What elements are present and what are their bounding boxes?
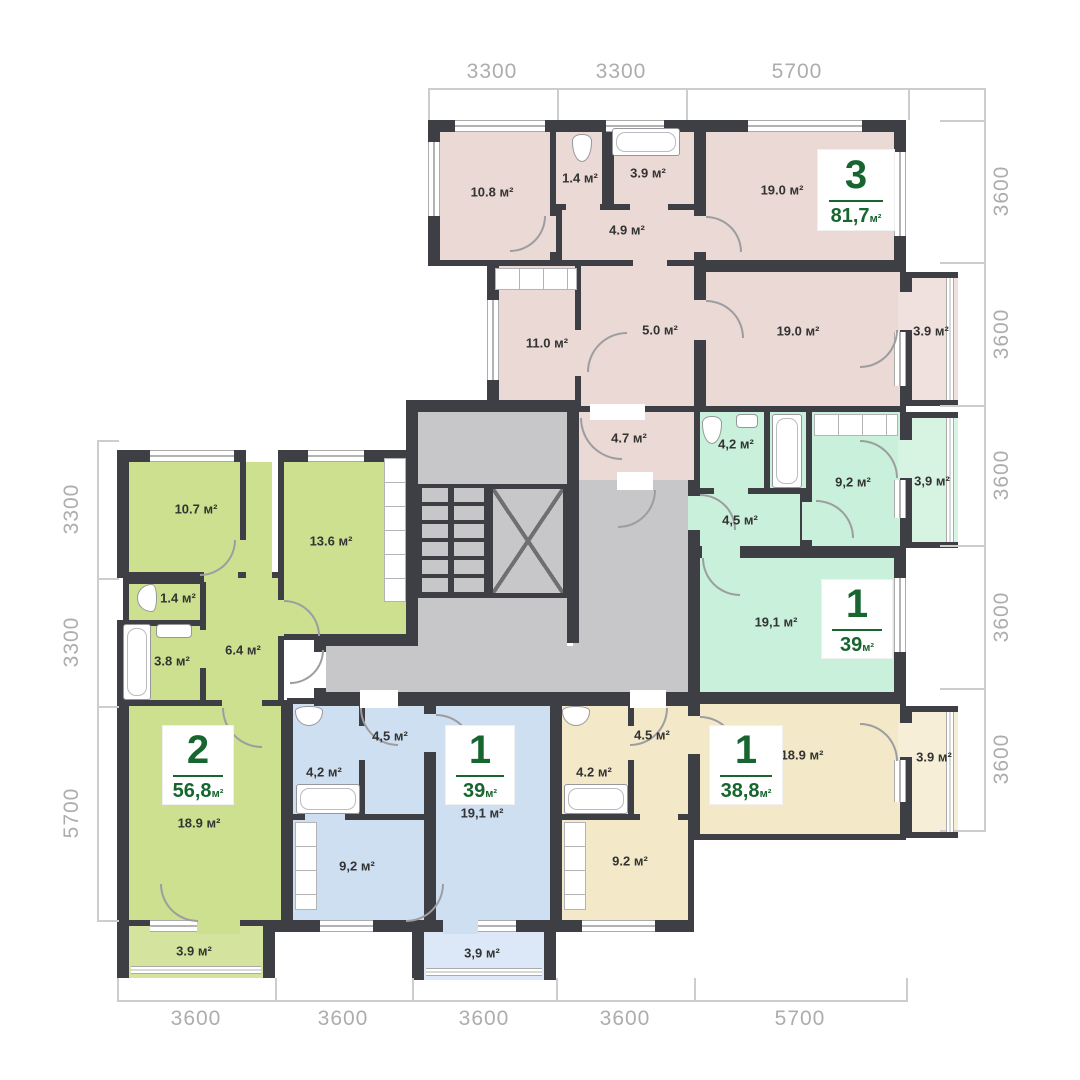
sink-icon xyxy=(156,624,192,638)
window xyxy=(894,578,906,652)
dim-line-right xyxy=(984,88,986,832)
badge-divider xyxy=(720,775,772,777)
dim-label: 3600 xyxy=(459,1007,510,1031)
window xyxy=(320,920,373,932)
dim-label: 3600 xyxy=(990,592,1014,643)
apartment-badge-yellow[interactable]: 1 38,8м² xyxy=(710,726,782,804)
room-area-label: 1.4 м² xyxy=(160,591,196,606)
balcony-rail xyxy=(946,712,954,832)
room-area-label: 4,5 м² xyxy=(372,729,408,744)
room-pink-hall2 xyxy=(575,260,700,412)
room-area-label: 4,2 м² xyxy=(718,437,754,452)
door-gap xyxy=(694,216,706,252)
door-gap xyxy=(443,920,478,934)
window xyxy=(308,450,364,462)
dim-line-bottom xyxy=(117,1000,908,1002)
room-area-label: 13.6 м² xyxy=(310,534,353,549)
apartment-rooms-count: 1 xyxy=(735,730,757,770)
door-gap xyxy=(688,496,700,530)
dim-tick xyxy=(428,88,430,120)
kitchen-counter xyxy=(295,822,317,910)
door-gap xyxy=(714,486,748,500)
dim-tick xyxy=(686,88,688,120)
room-area-label: 4.2 м² xyxy=(576,765,612,780)
bathtub-icon xyxy=(612,128,680,156)
room-area-label: 19.0 м² xyxy=(777,324,820,339)
door-gap xyxy=(196,630,208,668)
dim-label: 3600 xyxy=(990,166,1014,217)
dim-tick xyxy=(940,688,986,690)
room-area-label: 4.5 м² xyxy=(634,728,670,743)
room-area-label: 19,1 м² xyxy=(461,806,504,821)
door-gap xyxy=(630,690,666,708)
dim-label: 3300 xyxy=(596,60,647,84)
dim-label: 3300 xyxy=(467,60,518,84)
badge-divider xyxy=(829,200,884,202)
apartment-rooms-count: 1 xyxy=(846,584,868,624)
badge-divider xyxy=(456,775,505,777)
window xyxy=(748,120,862,132)
room-area-label: 3.8 м² xyxy=(154,654,190,669)
dim-label: 3600 xyxy=(990,309,1014,360)
room-area-label: 3.9 м² xyxy=(916,750,952,765)
door-gap xyxy=(633,258,667,274)
dim-tick xyxy=(908,88,910,120)
room-area-label: 10.7 м² xyxy=(175,502,218,517)
dim-tick xyxy=(940,262,986,264)
bathtub-icon xyxy=(564,784,628,814)
bathtub-icon xyxy=(296,784,360,814)
room-area-label: 4,2 м² xyxy=(306,765,342,780)
dim-tick xyxy=(557,88,559,120)
apartment-rooms-count: 1 xyxy=(469,730,491,770)
door-gap xyxy=(688,716,700,754)
door-gap xyxy=(898,440,912,478)
room-area-label: 19,1 м² xyxy=(755,615,798,630)
window xyxy=(455,120,545,132)
bathtub-icon xyxy=(123,624,151,700)
dim-tick xyxy=(556,978,558,1002)
apartment-badge-pink[interactable]: 3 81,7м² xyxy=(818,150,894,230)
dim-label: 3600 xyxy=(990,734,1014,785)
dim-tick xyxy=(694,978,696,1002)
room-area-label: 5.0 м² xyxy=(642,323,678,338)
window xyxy=(582,920,655,932)
dim-tick xyxy=(97,920,119,922)
door-gap xyxy=(640,810,678,822)
door-gap xyxy=(898,292,912,330)
dim-tick xyxy=(97,440,119,442)
window xyxy=(894,152,906,236)
dim-tick xyxy=(940,545,986,547)
apartment-total-area: 81,7м² xyxy=(831,206,882,226)
room-area-label: 3.9 м² xyxy=(913,324,949,339)
dim-label: 3600 xyxy=(990,450,1014,501)
room-area-label: 18.9 м² xyxy=(178,816,221,831)
apartment-total-area: 39м² xyxy=(463,781,497,801)
wall-segment xyxy=(406,400,418,646)
room-area-label: 4.9 м² xyxy=(609,223,645,238)
balcony-rail xyxy=(131,966,261,974)
window xyxy=(487,300,499,380)
balcony-rail xyxy=(946,278,954,400)
sink-icon xyxy=(736,414,758,428)
apartment-badge-green[interactable]: 2 56,8м² xyxy=(163,726,233,804)
window xyxy=(150,450,234,462)
dim-tick xyxy=(97,706,119,708)
door-gap xyxy=(424,714,436,752)
room-area-label: 19.0 м² xyxy=(761,183,804,198)
dim-line-left xyxy=(97,440,99,922)
window xyxy=(150,920,197,932)
stair-lower-hall xyxy=(412,594,567,646)
room-area-label: 3.9 м² xyxy=(176,944,212,959)
room-green-hall xyxy=(200,572,284,706)
room-area-label: 4,5 м² xyxy=(722,513,758,528)
elevator-shaft xyxy=(488,484,568,598)
door-gap xyxy=(575,330,587,376)
door-gap xyxy=(353,726,365,760)
room-area-label: 1.4 м² xyxy=(562,171,598,186)
room-area-label: 9,2 м² xyxy=(339,859,375,874)
apartment-total-area: 39м² xyxy=(840,635,874,655)
door-gap xyxy=(222,694,262,708)
dim-label: 5700 xyxy=(60,788,84,839)
wall-segment xyxy=(567,412,579,643)
apartment-total-area: 56,8м² xyxy=(173,781,224,801)
badge-divider xyxy=(173,775,223,777)
dim-label: 5700 xyxy=(775,1007,826,1031)
badge-divider xyxy=(832,629,882,631)
kitchen-counter xyxy=(564,822,586,910)
dim-line-top xyxy=(428,88,985,90)
dim-tick xyxy=(940,405,986,407)
window xyxy=(428,142,440,216)
bathtub-icon xyxy=(772,414,802,488)
room-area-label: 11.0 м² xyxy=(526,336,568,351)
apartment-badge-blue[interactable]: 1 39м² xyxy=(446,726,514,804)
door-gap xyxy=(360,690,398,708)
dim-tick xyxy=(275,978,277,1002)
wall-segment xyxy=(314,634,418,646)
door-gap xyxy=(272,600,284,636)
door-gap xyxy=(197,920,240,934)
apartment-total-area: 38,8м² xyxy=(721,781,772,801)
floor-plan: 3300 3300 5700 3600 3600 3600 3600 3600 … xyxy=(0,0,1080,1080)
door-gap xyxy=(544,216,556,252)
window xyxy=(478,920,516,932)
wardrobe xyxy=(384,458,406,602)
room-area-label: 3,9 м² xyxy=(914,474,950,489)
balcony-rail xyxy=(426,968,542,976)
door-gap xyxy=(898,723,912,757)
stair-landing xyxy=(412,408,567,488)
room-area-label: 9.2 м² xyxy=(612,854,648,869)
wall-segment xyxy=(406,400,579,412)
apartment-badge-mint[interactable]: 1 39м² xyxy=(822,580,892,658)
door-gap xyxy=(617,472,653,490)
room-area-label: 18.9 м² xyxy=(781,748,824,763)
door-gap xyxy=(694,300,706,340)
room-area-label: 6.4 м² xyxy=(225,643,261,658)
dim-tick xyxy=(412,978,414,1002)
kitchen-counter xyxy=(814,414,898,436)
door-gap xyxy=(238,540,250,572)
dim-tick xyxy=(97,578,119,580)
room-area-label: 4.7 м² xyxy=(611,431,647,446)
room-area-label: 9,2 м² xyxy=(835,475,871,490)
stairs-flight xyxy=(418,484,452,598)
door-gap xyxy=(566,199,600,211)
window xyxy=(894,480,906,518)
door-gap xyxy=(702,546,740,558)
apartment-rooms-count: 3 xyxy=(845,155,867,195)
apartment-rooms-count: 2 xyxy=(187,730,209,770)
kitchen-counter xyxy=(495,268,577,290)
dim-label: 3600 xyxy=(600,1007,651,1031)
dim-label: 3600 xyxy=(171,1007,222,1031)
dim-tick xyxy=(117,978,119,1002)
dim-tick xyxy=(906,978,908,1002)
room-area-label: 10.8 м² xyxy=(471,185,514,200)
window xyxy=(894,760,906,802)
dim-label: 3600 xyxy=(318,1007,369,1031)
room-area-label: 3.9 м² xyxy=(630,166,666,181)
dim-label: 3300 xyxy=(60,617,84,668)
dim-label: 3300 xyxy=(60,484,84,535)
door-gap xyxy=(802,502,816,540)
dim-tick xyxy=(940,120,986,122)
door-gap xyxy=(630,199,668,211)
lobby xyxy=(326,646,694,696)
dim-label: 5700 xyxy=(772,60,823,84)
room-area-label: 3,9 м² xyxy=(464,946,500,961)
stairs-flight xyxy=(450,484,488,598)
